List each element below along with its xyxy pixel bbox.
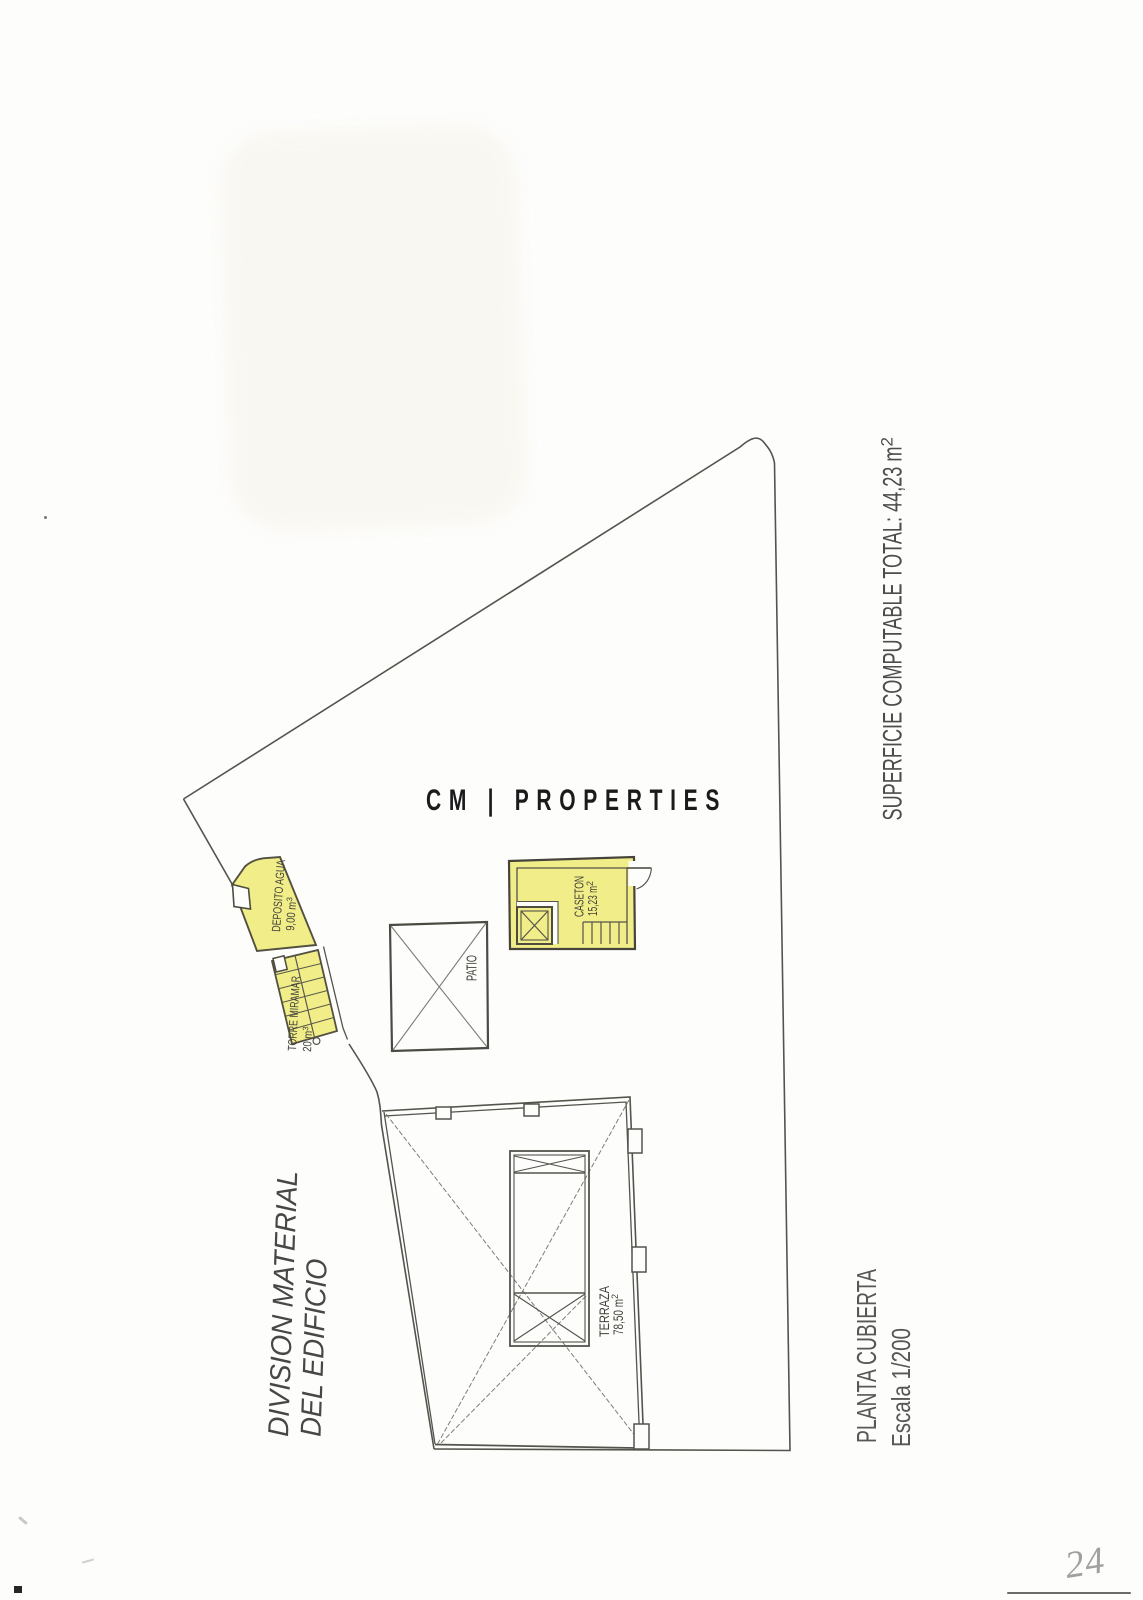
svg-text:PLANTA CUBIERTA: PLANTA CUBIERTA (851, 1269, 882, 1443)
svg-text:SUPERFICIE COMPUTABLE TOTAL: 4: SUPERFICIE COMPUTABLE TOTAL: 44,23 m2 (878, 437, 908, 820)
svg-text:78,50 m2: 78,50 m2 (610, 1294, 626, 1335)
svg-text:DEL EDIFICIO: DEL EDIFICIO (296, 1258, 334, 1437)
svg-text:15,23 m2: 15,23 m2 (585, 881, 600, 916)
svg-text:PATIO: PATIO (464, 955, 481, 981)
svg-text:Escala 1/200: Escala 1/200 (886, 1328, 916, 1447)
